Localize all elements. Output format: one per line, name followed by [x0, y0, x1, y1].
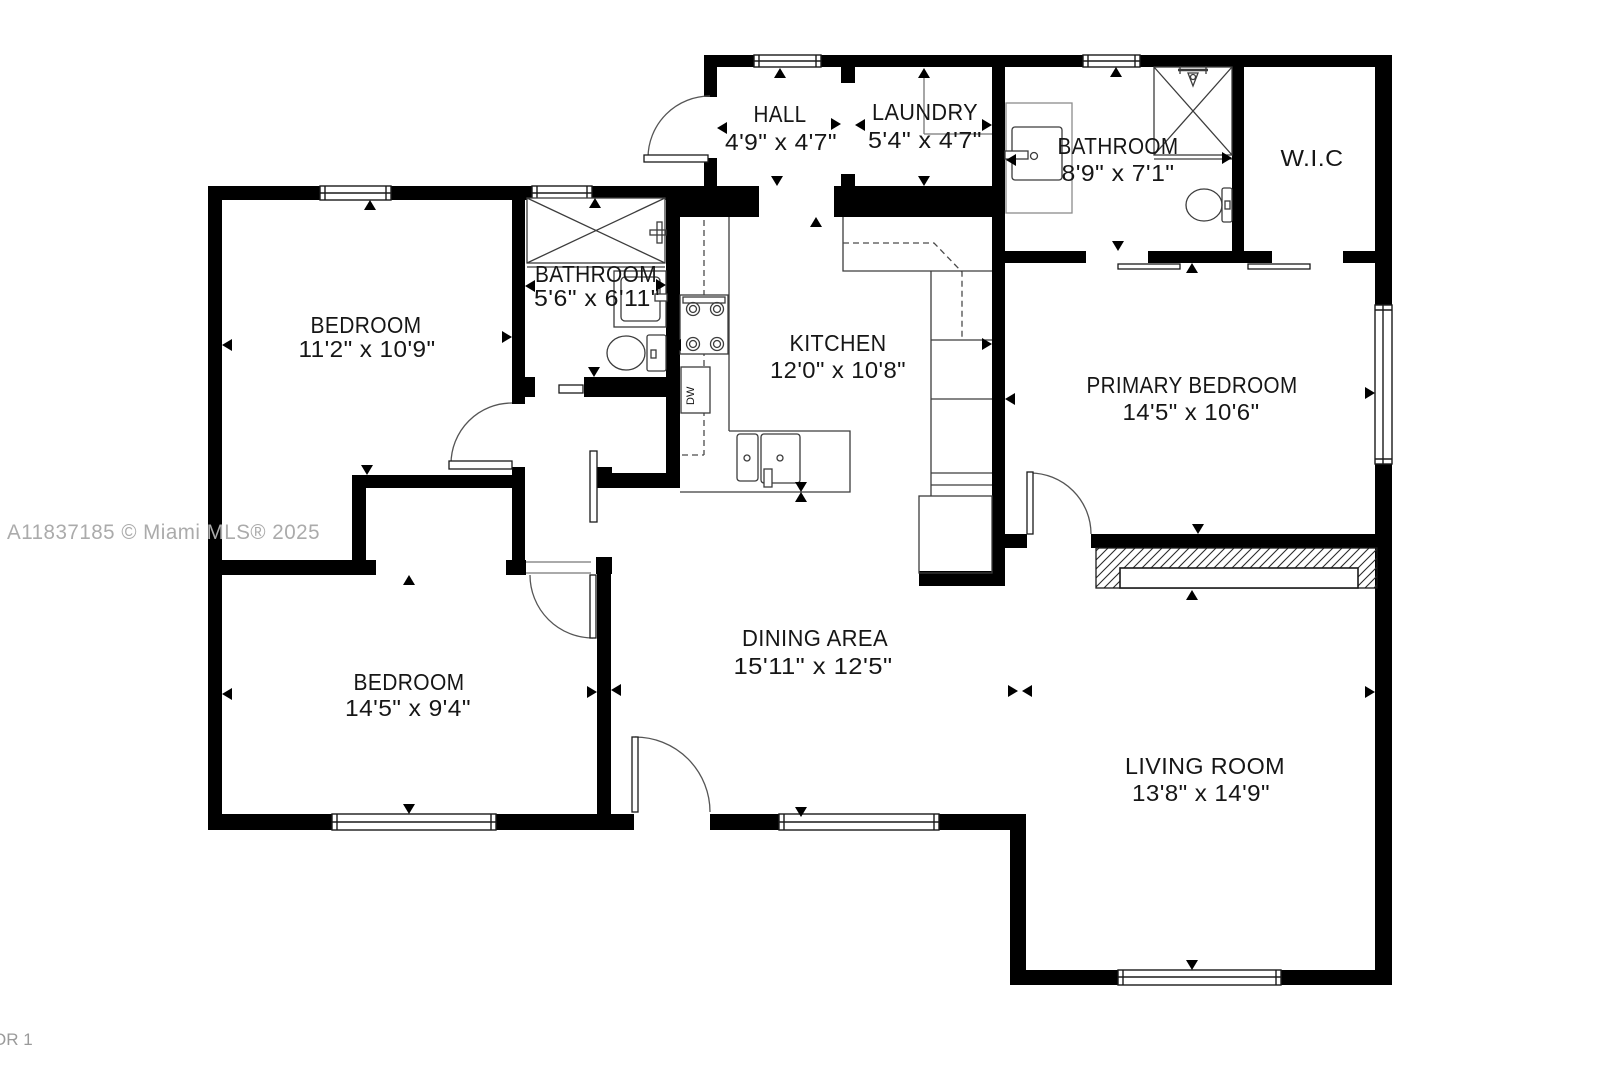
svg-text:8'9" x 7'1": 8'9" x 7'1" [1062, 160, 1175, 186]
svg-text:HALL: HALL [754, 101, 807, 127]
svg-text:BATHROOM: BATHROOM [1058, 133, 1179, 159]
svg-text:12'0" x 10'8": 12'0" x 10'8" [770, 357, 906, 383]
svg-text:BEDROOM: BEDROOM [354, 669, 465, 695]
svg-text:4'9" x 4'7": 4'9" x 4'7" [725, 129, 837, 155]
svg-text:BEDROOM: BEDROOM [311, 312, 422, 338]
svg-text:5'4" x 4'7": 5'4" x 4'7" [868, 127, 982, 153]
svg-text:14'5" x 9'4": 14'5" x 9'4" [345, 695, 471, 721]
svg-text:11'2" x 10'9": 11'2" x 10'9" [299, 336, 436, 362]
svg-text:13'8" x 14'9": 13'8" x 14'9" [1132, 780, 1270, 806]
svg-text:15'11" x 12'5": 15'11" x 12'5" [734, 653, 893, 679]
svg-text:DW: DW [685, 386, 697, 405]
svg-text:KITCHEN: KITCHEN [790, 330, 887, 356]
svg-text:PRIMARY BEDROOM: PRIMARY BEDROOM [1087, 372, 1298, 398]
svg-text:LAUNDRY: LAUNDRY [872, 99, 978, 125]
svg-text:14'5" x 10'6": 14'5" x 10'6" [1123, 399, 1260, 425]
svg-text:LIVING ROOM: LIVING ROOM [1125, 753, 1285, 779]
svg-text:BATHROOM: BATHROOM [535, 261, 657, 287]
svg-text:A11837185 © Miami MLS® 2025: A11837185 © Miami MLS® 2025 [7, 521, 320, 544]
svg-text:5'6" x 6'11": 5'6" x 6'11" [534, 285, 660, 311]
svg-text:FLOOR 1: FLOOR 1 [0, 1030, 33, 1049]
svg-text:DINING AREA: DINING AREA [742, 625, 888, 651]
svg-text:W.I.C: W.I.C [1281, 145, 1344, 171]
